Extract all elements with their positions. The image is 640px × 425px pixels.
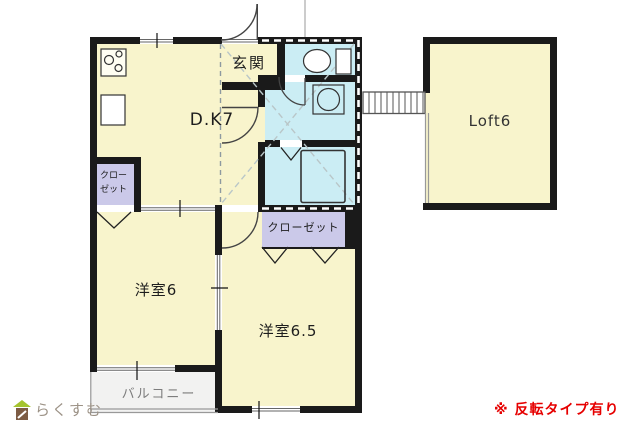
wall-mid-right: [258, 205, 362, 212]
wall-toilet-bottom-a: [258, 75, 280, 82]
wall-loft-top: [423, 37, 557, 44]
wall-left: [90, 37, 97, 372]
label-bedroom1: 洋室6: [106, 279, 206, 300]
room-washroom: [265, 82, 355, 140]
brand-name: らくすむ: [35, 399, 103, 420]
wall-entrance-bottom: [222, 82, 277, 90]
window-bedroom2-opening: [252, 406, 300, 413]
wall-right: [355, 37, 362, 413]
entrance-door: [221, 4, 257, 40]
wall-washroom-bottom-a: [265, 140, 280, 147]
label-closet-dk: クローゼット: [98, 169, 135, 198]
wall-washroom-left-a: [258, 90, 265, 107]
floor-plan: D.K7 玄関 クローゼット 洋室6 洋室6.5 クローゼット バルコニー Lo…: [0, 0, 640, 425]
loft-ladder: [363, 92, 425, 114]
brand-logo: らくすむ: [12, 398, 103, 420]
entrance-door-opening: [222, 37, 258, 44]
label-entrance: 玄関: [221, 52, 277, 73]
wall-toilet-bottom-b: [305, 75, 355, 82]
wall-loft-right: [550, 37, 557, 210]
mirror-type-note: ※ 反転タイプ有り: [494, 399, 619, 419]
label-closet-bedroom2: クローゼット: [262, 219, 345, 235]
wall-washroom-bottom-b: [302, 140, 355, 147]
room-bathroom: [265, 147, 355, 205]
wall-closet-bedroom2-right: [345, 212, 355, 249]
wall-loft-bottom: [423, 203, 557, 210]
wall-loft-left: [423, 37, 430, 93]
sliding-door-dk-bedroom1: [141, 205, 215, 212]
wall-closet-dk-right: [134, 157, 141, 212]
window-top-opening: [140, 37, 173, 44]
brand-logo-icon: [12, 398, 32, 420]
wall-entrance-right: [277, 44, 285, 90]
room-toilet: [285, 44, 355, 75]
label-dk: D.K7: [172, 110, 252, 130]
window-bedroom1-opening: [97, 365, 175, 372]
sliding-door-bedroom1-bedroom2: [215, 255, 222, 330]
label-bedroom2: 洋室6.5: [238, 320, 338, 341]
label-loft: Loft6: [440, 112, 540, 130]
wall-washroom-left-b: [258, 142, 265, 205]
label-balcony: バルコニー: [98, 383, 220, 402]
